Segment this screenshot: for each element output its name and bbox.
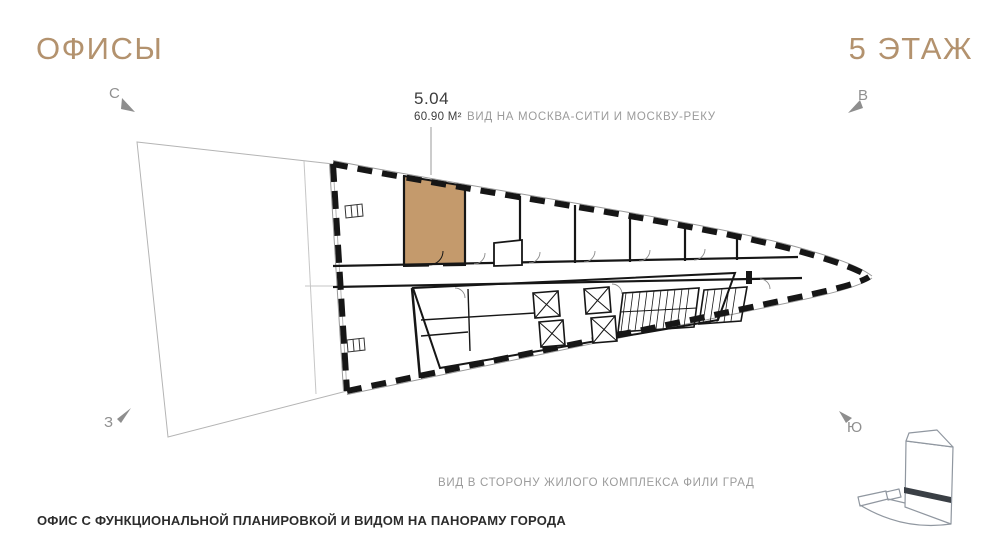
west-arrow-icon	[117, 408, 131, 423]
unit-5-04-room[interactable]	[404, 176, 465, 266]
unit-number: 5.04	[414, 90, 462, 107]
floor-number-title: 5 ЭТАЖ	[849, 33, 973, 64]
compass-west-label: З	[104, 415, 113, 430]
north-arrow-icon	[121, 98, 135, 112]
compass-north-label: С	[109, 86, 120, 101]
compass-south-label: Ю	[847, 420, 862, 435]
floor-plan	[0, 0, 1000, 554]
compass-east-label: В	[858, 88, 868, 103]
compass-arrows	[117, 98, 863, 423]
elevator-shafts	[533, 287, 617, 347]
unit-area: 60.90 М²	[414, 112, 462, 124]
radiators	[345, 204, 365, 352]
view-label-south: ВИД В СТОРОНУ ЖИЛОГО КОМПЛЕКСА ФИЛИ ГРАД	[438, 478, 754, 490]
unit-label: 5.04 60.90 М²	[414, 90, 462, 124]
terrace-outline	[137, 142, 347, 437]
page-title-offices: ОФИСЫ	[36, 33, 163, 64]
building-location-icon	[858, 430, 953, 525]
footer-caption: ОФИС С ФУНКЦИОНАЛЬНОЙ ПЛАНИРОВКОЙ И ВИДО…	[37, 514, 566, 527]
view-label-north: ВИД НА МОСКВА-СИТИ И МОСКВУ-РЕКУ	[467, 112, 716, 124]
